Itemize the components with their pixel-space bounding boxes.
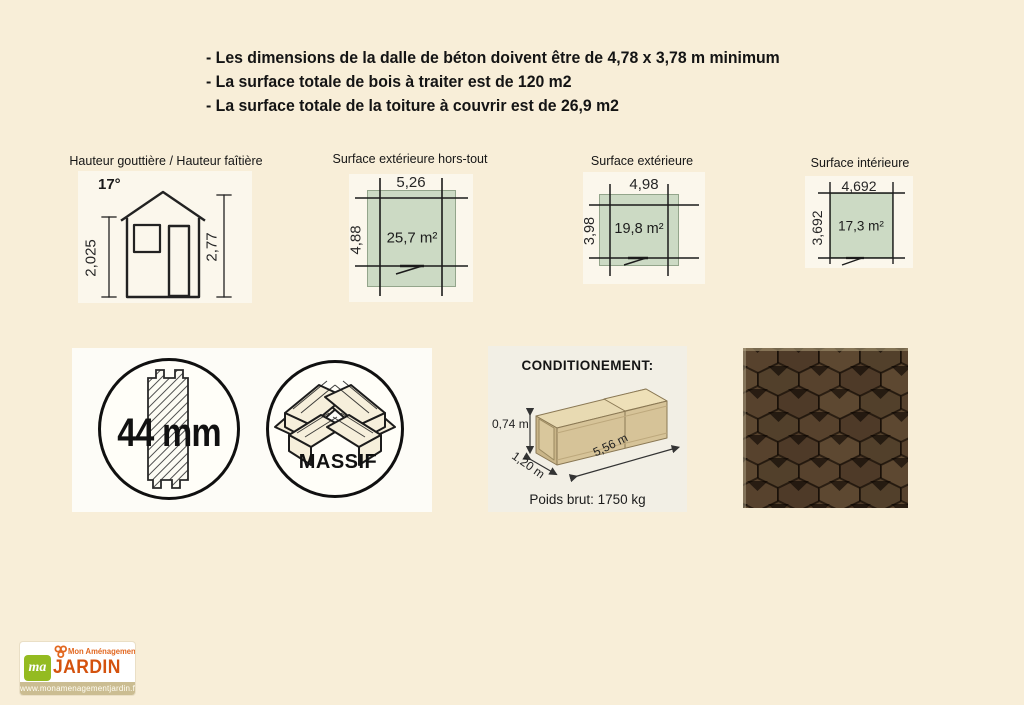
packaging-panel: CONDITIONEMENT: (488, 346, 687, 512)
solid-wood-label: MASSIF (269, 451, 407, 474)
diagram-interior-title: Surface intérieure (805, 156, 915, 170)
plan-depth-label: 3,98 (582, 217, 598, 245)
diagram-exterior-title: Surface extérieure (577, 154, 707, 168)
plan-depth-label: 3,692 (809, 210, 825, 245)
plan-area-label: 25,7 m² (387, 230, 438, 247)
brand-logo: ma Mon Aménagement JARDIN www.monamenage… (20, 642, 135, 695)
diagram-heights-panel: 17° 2,025 2,77 (78, 171, 252, 303)
gross-weight-label: Poids brut: 1750 kg (488, 492, 687, 507)
diagram-ext-overall-title: Surface extérieure hors-tout (324, 152, 496, 166)
crate-height-label: 0,74 m (492, 417, 529, 431)
brand-website: www.monamenagementjardin.fr (20, 682, 135, 695)
roof-shingles-photo (743, 348, 908, 508)
solid-wood-badge: MASSIF (266, 360, 404, 498)
gutter-height-label: 2,025 (83, 239, 100, 277)
roof-angle-label: 17° (98, 176, 121, 193)
wood-features-panel: 44 mm (72, 348, 432, 512)
packaging-title: CONDITIONEMENT: (488, 358, 687, 373)
shingles-photo-svg (743, 348, 908, 508)
notes-block: - Les dimensions de la dalle de béton do… (206, 46, 780, 118)
shingles-hex-grid (743, 348, 908, 508)
brand-name-top: Mon Aménagement (68, 646, 135, 656)
diagram-exterior-panel: 4,98 3,98 19,8 m² (583, 172, 705, 284)
diagram-heights-title: Hauteur gouttière / Hauteur faîtière (56, 154, 276, 168)
product-spec-sheet: - Les dimensions de la dalle de béton do… (0, 0, 1024, 705)
diagram-interior-panel: 4,692 3,692 17,3 m² (805, 176, 913, 268)
note-line-toiture: - La surface totale de la toiture à couv… (206, 94, 780, 118)
wall-thickness-label: 44 mm (111, 411, 227, 456)
brand-monogram: ma (24, 655, 51, 681)
diagram-ext-overall-panel: 5,26 4,88 25,7 m² (349, 174, 473, 302)
note-line-dalle: - Les dimensions de la dalle de béton do… (206, 46, 780, 70)
plan-area-label: 17,3 m² (838, 219, 884, 234)
plan-depth-label: 4,88 (348, 225, 365, 254)
log-joint-icon (269, 363, 401, 495)
brand-name-main: JARDIN (53, 657, 121, 679)
wall-thickness-badge: 44 mm (98, 358, 240, 500)
plan-area-label: 19,8 m² (614, 221, 663, 237)
note-line-bois: - La surface totale de bois à traiter es… (206, 70, 780, 94)
ridge-height-label: 2,77 (204, 232, 221, 261)
